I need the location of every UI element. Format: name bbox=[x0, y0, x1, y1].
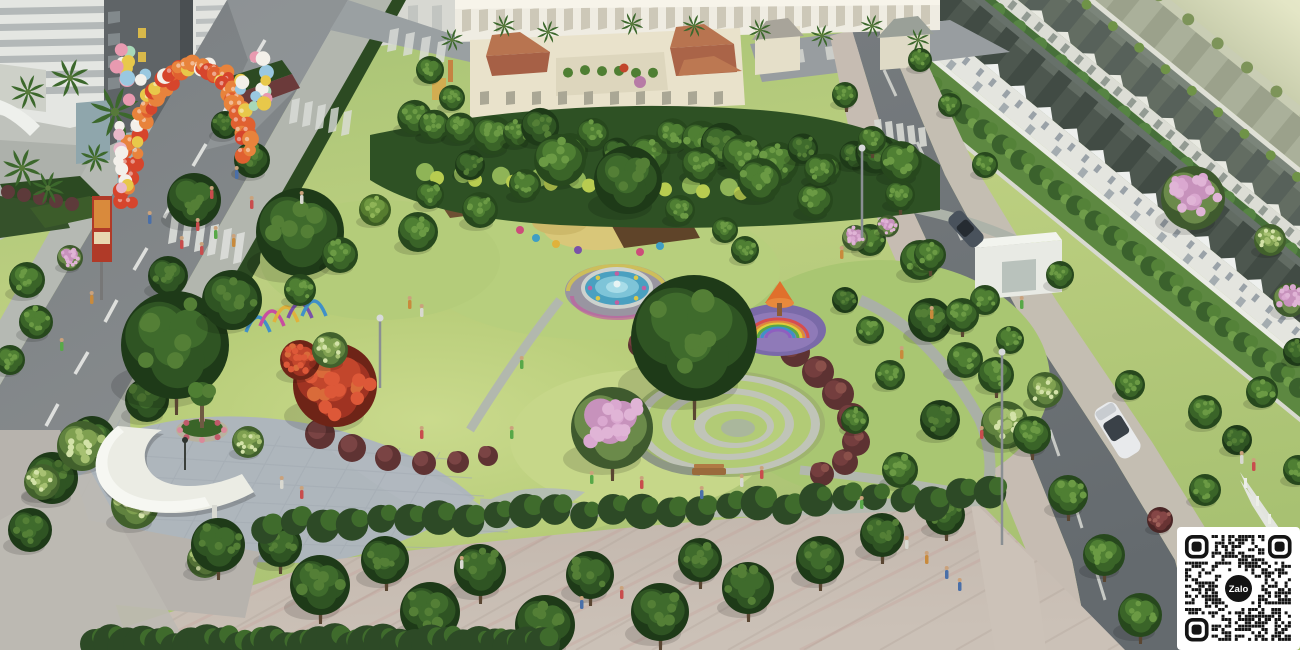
svg-text:Zalo: Zalo bbox=[1229, 584, 1249, 595]
